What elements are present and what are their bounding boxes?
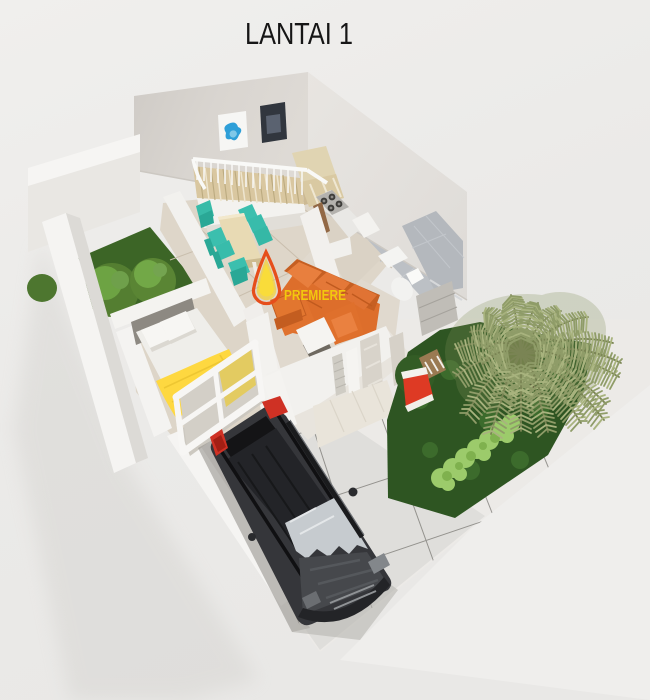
svg-text:PREMIERE: PREMIERE	[284, 288, 346, 304]
svg-text:LANTAI 1: LANTAI 1	[245, 16, 353, 51]
